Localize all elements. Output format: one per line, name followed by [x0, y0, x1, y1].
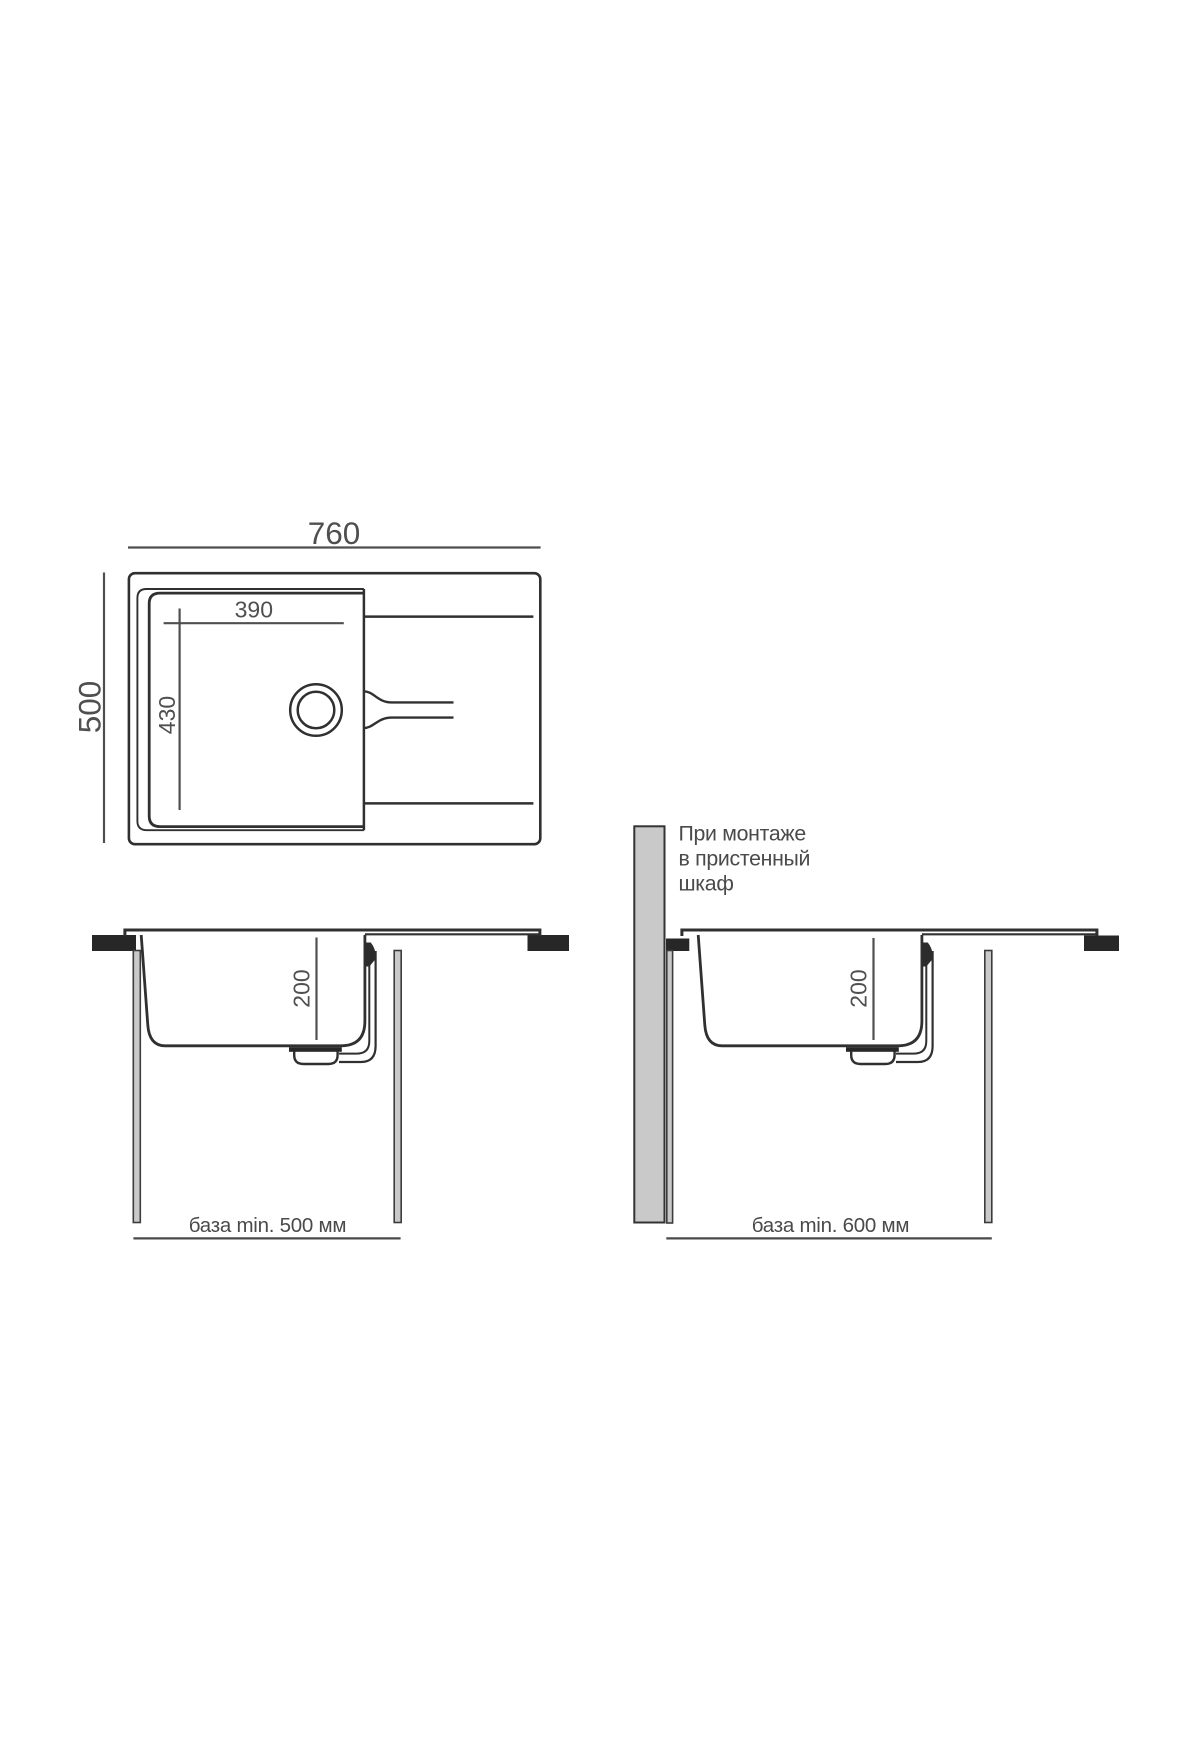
svg-text:в пристенный: в пристенный	[679, 847, 811, 871]
svg-text:430: 430	[154, 696, 180, 734]
svg-text:шкаф: шкаф	[679, 872, 734, 896]
svg-text:760: 760	[308, 515, 361, 551]
svg-text:база min. 600 мм: база min. 600 мм	[752, 1214, 909, 1237]
svg-text:390: 390	[235, 597, 273, 623]
svg-text:200: 200	[846, 969, 872, 1007]
svg-text:база min. 500 мм: база min. 500 мм	[189, 1214, 346, 1237]
svg-text:При монтаже: При монтаже	[679, 822, 806, 846]
svg-text:500: 500	[72, 681, 108, 734]
svg-text:200: 200	[289, 969, 315, 1007]
